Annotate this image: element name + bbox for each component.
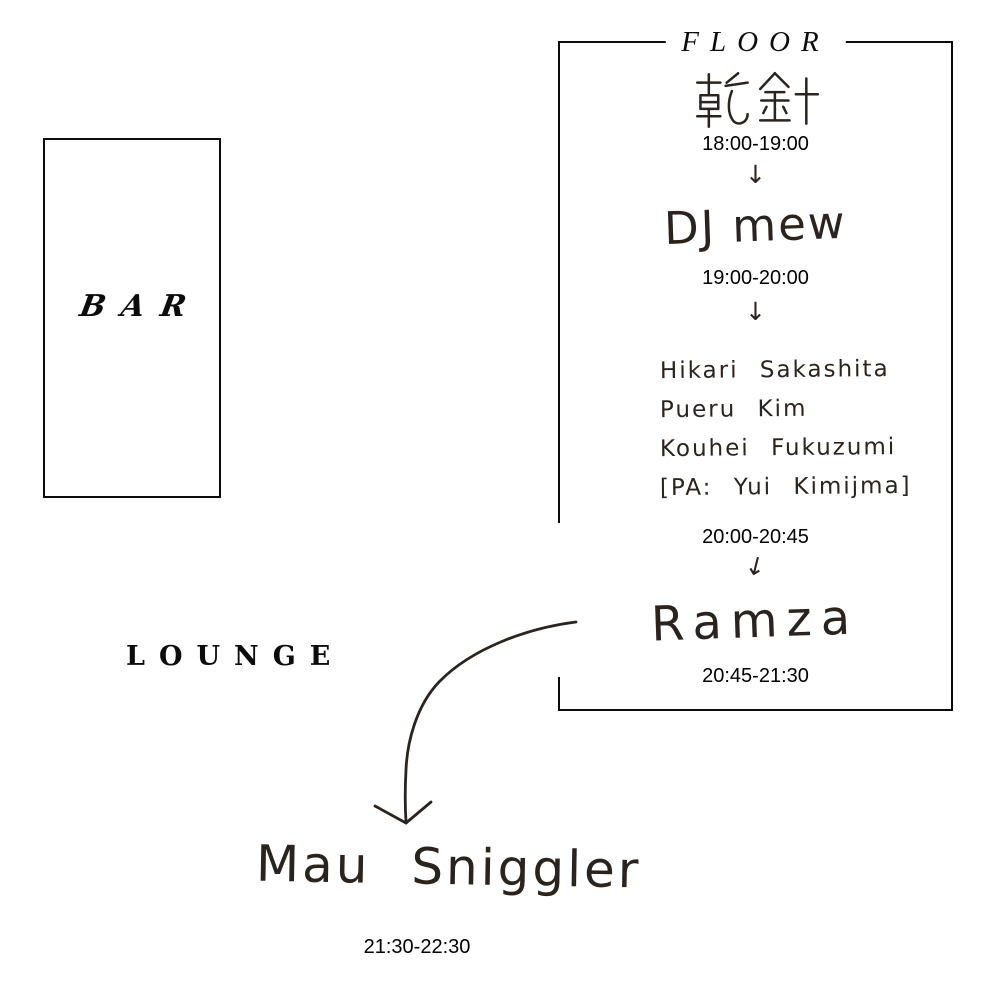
schedule-flow-arrow-3: ↓ [560, 554, 951, 580]
floor-room-box: FLOOR [558, 41, 953, 711]
lounge-act-time: 21:30-22:30 [317, 936, 517, 959]
floor-room-label: FLOOR [665, 24, 845, 60]
floor-act-3-time: 20:00-20:45 [560, 526, 951, 549]
bar-room-label: BAR [63, 289, 205, 324]
performer-name: Kouhei Fukuzumi [660, 428, 912, 469]
curved-arrow-icon [360, 598, 600, 838]
down-arrow-icon: ↓ [745, 162, 766, 188]
performer-name: Pueru Kim [660, 389, 912, 430]
lounge-area-label: LOUNGE [126, 641, 344, 672]
floor-act-4-artist: Ramza [560, 593, 951, 649]
floor-act-3-artists: Hikari Sakashita Pueru Kim Kouhei Fukuzu… [660, 351, 912, 507]
floor-act-2-time: 19:00-20:00 [560, 267, 951, 290]
lounge-act-artist: Mau Sniggler [256, 835, 637, 900]
performer-name: Hikari Sakashita [660, 350, 912, 391]
down-arrow-icon: ↓ [742, 552, 769, 582]
bar-room-box: BAR [43, 138, 221, 498]
down-arrow-icon: ↓ [745, 299, 766, 325]
kanji-inubari-drawing [691, 70, 821, 131]
pa-credit: [PA: Yui Kimijma] [660, 467, 912, 508]
floor-act-4-time: 20:45-21:30 [560, 665, 951, 688]
event-timetable-flyer: BAR FLOOR [0, 0, 1000, 1000]
floor-act-1-artist-kanji [691, 70, 821, 136]
schedule-flow-arrow-1: ↓ [560, 162, 951, 188]
schedule-flow-arrow-2: ↓ [560, 299, 951, 325]
floor-act-2-artist: DJ mew [560, 199, 951, 252]
floor-act-1-time: 18:00-19:00 [560, 133, 951, 156]
